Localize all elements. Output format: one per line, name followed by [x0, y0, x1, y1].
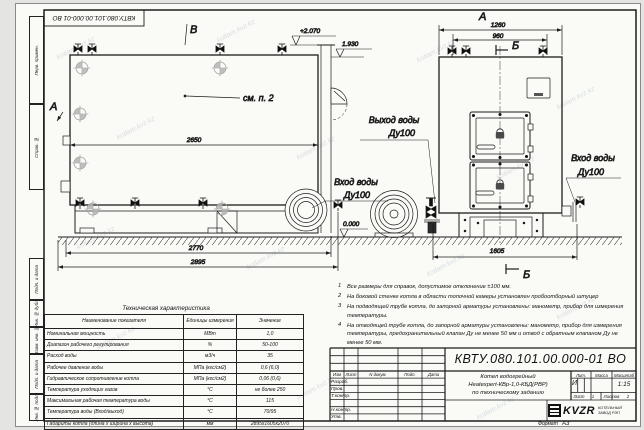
- svg-text:+2.070: +2.070: [300, 28, 320, 35]
- inlet-pipe: [562, 197, 584, 222]
- tech-row: Диапазон рабочего регулирования%50-100: [45, 340, 304, 351]
- format-value: А3: [562, 421, 569, 427]
- note-text: Все размеры для справок, допустимое откл…: [347, 283, 636, 292]
- cell: °С: [184, 384, 237, 395]
- row-utv: Утв.: [331, 415, 342, 420]
- tech-row: Габариты котла (длина х ширина х высота)…: [45, 418, 304, 429]
- valve-icon: [76, 198, 84, 209]
- valve-icon: [539, 46, 547, 57]
- format-label: Формат А3: [538, 421, 608, 427]
- lit-value: И: [571, 380, 578, 387]
- center-mark-icon: [212, 60, 229, 77]
- stamp-doc-number: КВТУ.080.101.00.000-01 ВО: [44, 10, 144, 26]
- sheets-label: Листов: [601, 394, 622, 399]
- outlet-label: Выход воды Ду100: [360, 115, 435, 203]
- tech-row: Рабочее давление водыМПа (кгс/см2)0,6 (6…: [45, 362, 304, 373]
- center-mark-icon: [214, 201, 231, 218]
- pedestal: [459, 213, 543, 237]
- svg-text:Ду100: Ду100: [577, 167, 604, 177]
- cell: МВт: [184, 329, 237, 340]
- cell: Расход воды: [45, 351, 184, 362]
- cell: Рабочее давление воды: [45, 362, 184, 373]
- tech-table-header: Наименование показателя Единицы измерени…: [45, 315, 304, 329]
- note-text: На отводящей трубе котла, до запорной ар…: [347, 322, 636, 348]
- ground-line: [58, 237, 622, 245]
- valve-icon: [88, 44, 96, 55]
- cell: Диапазон рабочего регулирования: [45, 340, 184, 351]
- notes-list: 1Все размеры для справок, допустимое отк…: [338, 283, 636, 349]
- dim-1605: 1605: [490, 248, 505, 255]
- center-mark-icon: [85, 201, 102, 218]
- side-view: [61, 44, 347, 233]
- note-item: 2На боковой стенке котла в области топоч…: [338, 293, 636, 302]
- outlet-valve-assembly: [424, 198, 440, 233]
- cell: 0,06 (0,6): [237, 373, 304, 384]
- cell: МПа (кгс/см2): [184, 373, 237, 384]
- center-mark-icon: [72, 155, 89, 172]
- dim-2650: 2650: [186, 137, 202, 144]
- col-izm: Изм: [330, 372, 344, 377]
- margin-field-podp-data-1: Подп. и дата: [29, 258, 44, 300]
- note-ref: см. п. 2: [184, 93, 274, 103]
- front-view: [439, 46, 584, 243]
- tech-row: Температура уходящих газов°Сне более 250: [45, 384, 304, 395]
- logo-text: KVZR: [563, 405, 595, 417]
- col-list: Лист: [344, 372, 358, 377]
- cell: °С: [184, 396, 237, 407]
- cell: Температура уходящих газов: [45, 384, 184, 395]
- sheets-value: 2: [622, 394, 634, 399]
- cell: м3/ч: [184, 351, 237, 362]
- cell: не более 250: [237, 384, 304, 395]
- cell: Гидравлическое сопротивление котла: [45, 373, 184, 384]
- tech-row: Номинальная мощностьМВт1,0: [45, 329, 304, 340]
- margin-field-inv-podl: Инв. № подл.: [29, 394, 44, 421]
- tech-row: Температура воды (Вход/выход)°С70/95: [45, 407, 304, 418]
- drawing-page: kotlam.kvz.kz kotlam.kvz.kz kotlam.kvz.k…: [0, 0, 644, 430]
- cell: МПа (кгс/см2): [184, 362, 237, 373]
- note-text: На подводящей трубе котла, до запорной а…: [347, 303, 636, 320]
- cell: 1,0: [237, 329, 304, 340]
- note-item: 3На подводящей трубе котла, до запорной …: [338, 303, 636, 320]
- dim-2895: 2895: [190, 259, 206, 266]
- cell: Температура воды (Вход/выход): [45, 407, 184, 418]
- company-line2: ЗАВОД РЭП: [598, 411, 620, 415]
- cell: Номинальная мощность: [45, 329, 184, 340]
- note-number: 4: [338, 322, 347, 348]
- row-tkontr: Т.контр.: [331, 394, 350, 399]
- col-ndok: N докум.: [358, 372, 398, 377]
- title-block-doc-number: КВТУ.080.101.00.000-01 ВО: [447, 350, 634, 368]
- row-prov: Пров.: [331, 387, 344, 392]
- col-header: Единицы измерения: [184, 315, 237, 329]
- note-text: На боковой стенке котла в области топочн…: [347, 293, 636, 302]
- lit-label: Лит.: [571, 373, 591, 378]
- note-number: 3: [338, 303, 347, 320]
- dim-2770: 2770: [188, 245, 204, 252]
- note-item: 1Все размеры для справок, допустимое отк…: [338, 283, 636, 292]
- combustion-fan: [371, 191, 418, 238]
- valve-icon: [334, 200, 342, 211]
- col-data: Дата: [422, 372, 445, 377]
- note-number: 1: [338, 283, 347, 292]
- margin-field-vzam-inv: Взам. инв. №: [29, 327, 44, 354]
- cell: мм: [184, 418, 237, 429]
- note-number: 2: [338, 293, 347, 302]
- company-line1: КОТЕЛЬНЫЙ: [598, 406, 622, 410]
- kvzr-logo-icon: [548, 404, 561, 417]
- view-letter-A-front: А: [478, 11, 486, 23]
- elevation-1930: 1.930: [331, 41, 372, 57]
- center-mark-icon: [74, 60, 91, 77]
- format-word: Формат: [538, 421, 558, 427]
- tech-row: Максимальная рабочая температура воды°С1…: [45, 396, 304, 407]
- scale-value: 1:15: [612, 381, 636, 388]
- doc-name-line3: по техническому заданию: [446, 390, 570, 396]
- valve-icon: [576, 197, 584, 208]
- col-header: Наименование показателя: [45, 315, 184, 329]
- row-nkontr: Н.контр.: [331, 408, 351, 413]
- svg-text:Ду100: Ду100: [343, 190, 370, 200]
- note-item: 4На отводящей трубе котла, до запорной а…: [338, 322, 636, 348]
- section-mark-top: Б: [496, 40, 519, 55]
- valve-icon: [199, 198, 207, 209]
- tech-table: Наименование показателя Единицы измерени…: [44, 314, 304, 430]
- elevation-0000: 0.000: [340, 221, 368, 237]
- valve-icon: [74, 44, 82, 55]
- doc-name-line1: Котел водогрейный: [446, 374, 570, 380]
- cell: 35: [237, 351, 304, 362]
- svg-text:Б: Б: [523, 269, 530, 281]
- mass-label: Масса: [591, 373, 612, 378]
- company-name: КОТЕЛЬНЫЙ ЗАВОД РЭП: [598, 406, 622, 415]
- cell: 50-100: [237, 340, 304, 351]
- svg-text:Вход воды: Вход воды: [334, 177, 378, 187]
- valve-icon: [448, 46, 456, 57]
- cell: 2895х1605х2070: [237, 418, 304, 429]
- tech-characteristics: Техническая характеристика Наименование …: [44, 305, 288, 430]
- valve-icon: [278, 44, 286, 55]
- tech-row: Гидравлическое сопротивление котлаМПа (к…: [45, 373, 304, 384]
- doc-name-line2: Heatexpert-КВр-1,0-КБД(РВР): [446, 382, 570, 388]
- dim-1260: 1260: [491, 22, 506, 29]
- margin-field-inv-dubl: Инв. № дубл.: [29, 300, 44, 327]
- view-letter-B: В: [190, 24, 197, 36]
- upper-door: [470, 112, 533, 160]
- tech-table-title: Техническая характеристика: [44, 305, 288, 312]
- section-mark-bottom: Б: [506, 264, 530, 281]
- cell: Габариты котла (длина х ширина х высота): [45, 418, 184, 429]
- margin-field-podp-data-2: Подп. и дата: [29, 354, 44, 394]
- elevation-2070: +2.070: [290, 28, 336, 45]
- row-razrab: Разраб.: [331, 380, 348, 385]
- svg-text:Выход воды: Выход воды: [369, 115, 420, 125]
- lower-door: [470, 162, 533, 209]
- sheet-label: Лист: [571, 394, 587, 399]
- margin-field-perv-primen: Перв. примен.: [29, 16, 44, 104]
- inlet-flange: [285, 189, 327, 231]
- company-logo: KVZR КОТЕЛЬНЫЙ ЗАВОД РЭП: [548, 401, 635, 420]
- valve-icon: [216, 44, 224, 55]
- cell: Максимальная рабочая температура воды: [45, 396, 184, 407]
- svg-text:Вход воды: Вход воды: [571, 153, 615, 163]
- svg-text:0.000: 0.000: [343, 221, 360, 228]
- cell: 115: [237, 396, 304, 407]
- dim-960: 960: [493, 33, 504, 40]
- tech-row: Расход водым3/ч35: [45, 351, 304, 362]
- valve-icon: [462, 46, 470, 57]
- svg-text:Ду100: Ду100: [388, 128, 415, 138]
- door-lock-icon: [496, 129, 504, 139]
- cell: °С: [184, 407, 237, 418]
- center-mark-icon: [72, 106, 89, 123]
- svg-text:1.930: 1.930: [342, 41, 359, 48]
- cell: %: [184, 340, 237, 351]
- inlet-label-front: Вход воды Ду100: [566, 153, 621, 202]
- svg-text:см. п. 2: см. п. 2: [243, 93, 274, 103]
- cell: 70/95: [237, 407, 304, 418]
- sheet-value: 1: [588, 394, 598, 399]
- valve-icon: [131, 198, 139, 209]
- col-podp: Подп.: [398, 372, 422, 377]
- scale-label: Масштаб: [612, 373, 636, 378]
- margin-field-sprav-no: Справ. №: [29, 104, 44, 190]
- view-letter-A-side: А: [49, 101, 57, 113]
- svg-text:Б: Б: [512, 40, 519, 52]
- cell: 0,6 (6,0): [237, 362, 304, 373]
- col-header: Значение: [237, 315, 304, 329]
